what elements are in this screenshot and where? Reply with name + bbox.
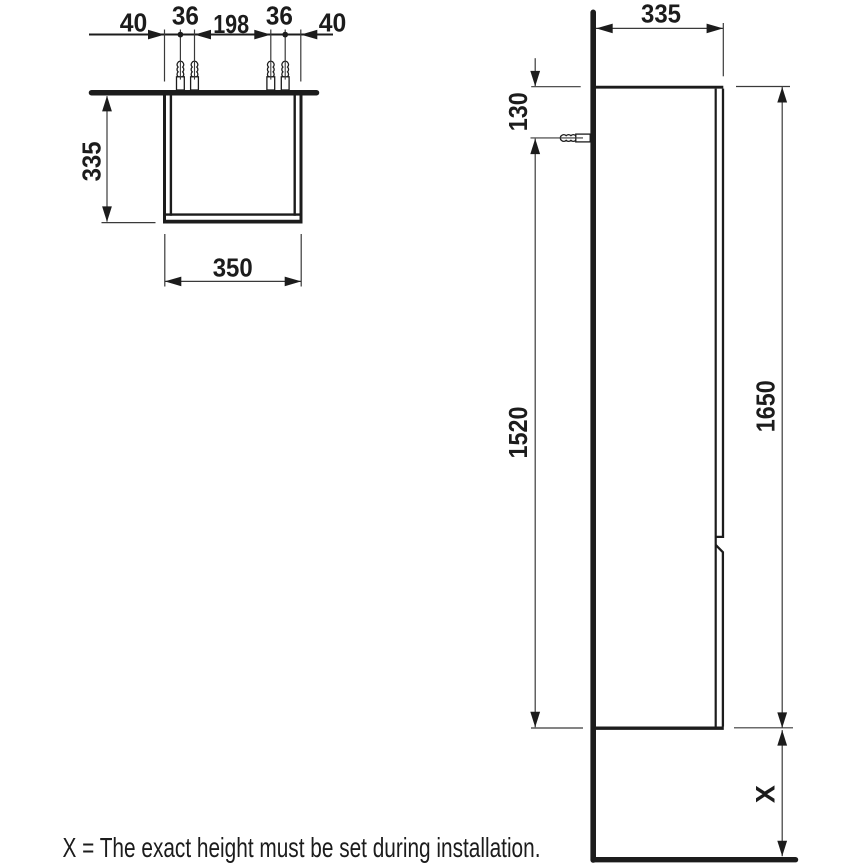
svg-text:335: 335	[641, 0, 681, 29]
svg-text:X: X	[751, 785, 781, 803]
svg-text:40: 40	[120, 7, 148, 37]
svg-text:36: 36	[172, 0, 199, 30]
svg-text:198: 198	[213, 9, 249, 39]
svg-text:335: 335	[76, 141, 106, 181]
svg-text:1520: 1520	[503, 407, 533, 459]
svg-text:130: 130	[503, 92, 533, 131]
svg-text:X = The exact height must be s: X = The exact height must be set during …	[63, 832, 541, 863]
svg-text:1650: 1650	[751, 380, 781, 432]
svg-text:36: 36	[266, 0, 293, 30]
svg-text:40: 40	[319, 7, 347, 37]
svg-text:350: 350	[213, 253, 253, 283]
